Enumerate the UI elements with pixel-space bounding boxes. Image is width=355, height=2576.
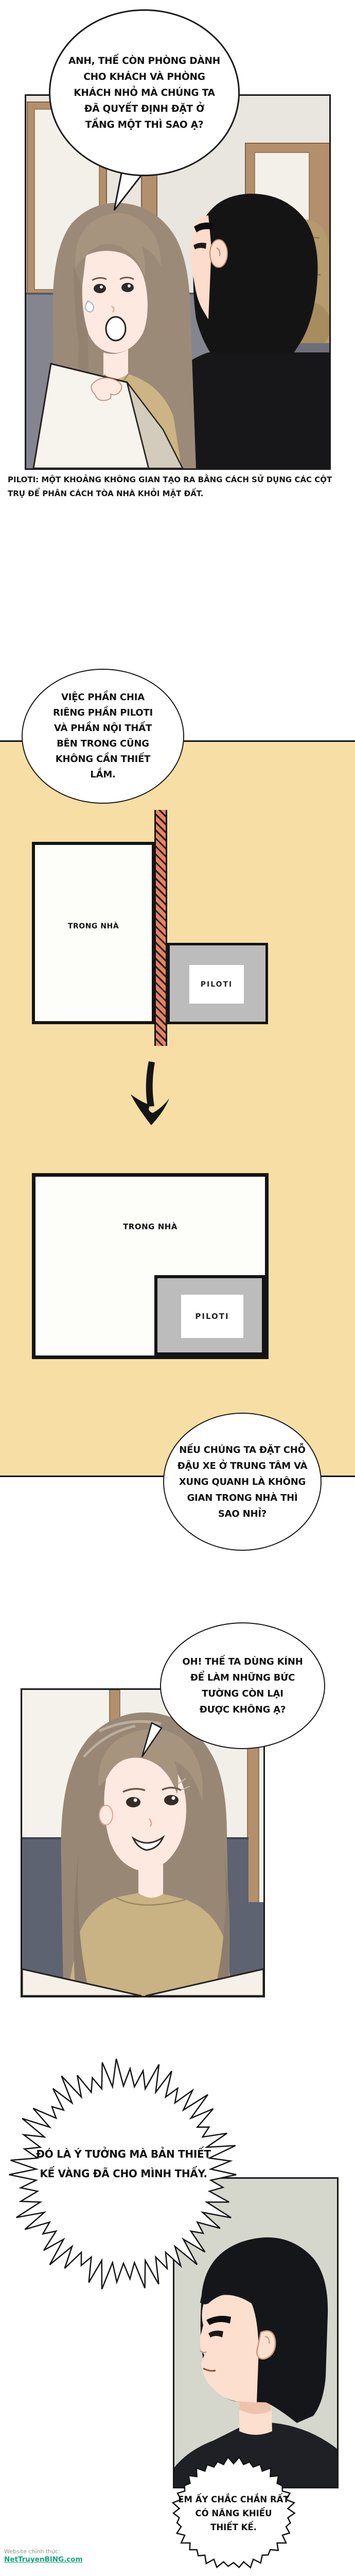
bubble-line: ĐƯỢC KHÔNG Ạ? — [200, 1702, 286, 1718]
caption-line: TRỤ ĐỂ PHÂN CÁCH TÒA NHÀ KHỎI MẶT ĐẤT. — [8, 487, 350, 501]
bubble-line: ĐÓ LÀ Ý TƯỞNG MÀ BẢN THIẾT — [25, 2144, 222, 2164]
bubble-line: THIẾT KẾ. — [177, 2520, 290, 2534]
bubble-line: GIAN TRONG NHÀ THÌ — [187, 1490, 297, 1506]
floorplan-before-room: TRONG NHÀ — [32, 842, 155, 1024]
down-arrow-icon — [122, 1059, 171, 1127]
bubble-line: KHÁCH NHỎ MÀ CHÚNG TA — [74, 85, 215, 101]
bubble-line: OH! THẾ TA DÙNG KÍNH — [182, 1654, 303, 1670]
bubble-line: KẾ VÀNG ĐÃ CHO MÌNH THẤY. — [25, 2164, 222, 2183]
piloti-definition-caption: PILOTI: MỘT KHOẢNG KHÔNG GIAN TẠO RA BẰN… — [8, 473, 350, 501]
piloti-label-box: PILOTI — [189, 965, 244, 1004]
speech-bubble-4: OH! THẾ TA DÙNG KÍNH ĐỂ LÀM NHỮNG BỨC TƯ… — [160, 1622, 325, 1749]
watermark: Website chính thức: NetTruyenBING.com — [4, 2548, 83, 2564]
speech-bubble-3: NẾU CHÚNG TA ĐẶT CHỖ ĐẬU XE Ở TRUNG TÂM … — [163, 1413, 322, 1551]
bubble-line: TẦNG MỘT THÌ SAO Ạ? — [85, 117, 204, 133]
room-label: TRONG NHÀ — [35, 1222, 265, 1231]
room-label: TRONG NHÀ — [35, 922, 152, 930]
piloti-label-box: PILOTI — [181, 1295, 243, 1338]
caption-line: PILOTI: MỘT KHOẢNG KHÔNG GIAN TẠO RA BẰN… — [8, 473, 350, 487]
bubble-line: LẮM. — [90, 767, 115, 783]
burst-bubble-text: ĐÓ LÀ Ý TƯỞNG MÀ BẢN THIẾT KẾ VÀNG ĐÃ CH… — [25, 2144, 222, 2183]
bubble-line: ANH, THẾ CÒN PHÒNG DÀNH — [68, 53, 220, 69]
piloti-label: PILOTI — [195, 1312, 229, 1321]
bubble-line: VÀ PHẦN NỘI THẤT — [54, 721, 152, 736]
speech-bubble-1: ANH, THẾ CÒN PHÒNG DÀNH CHO KHÁCH VÀ PHÒ… — [49, 9, 240, 176]
watermark-prefix: Website chính thức: — [4, 2548, 83, 2555]
bubble-line: ĐẬU XE Ở TRUNG TÂM VÀ — [177, 1458, 308, 1474]
piloti-label: PILOTI — [201, 980, 233, 989]
bubble4-tail — [135, 1716, 166, 1759]
webtoon-page: ANH, THẾ CÒN PHÒNG DÀNH CHO KHÁCH VÀ PHÒ… — [0, 0, 355, 2576]
bubble-line: ĐÃ QUYẾT ĐỊNH ĐẶT Ở — [84, 101, 204, 117]
bubble-line: ĐỂ LÀM NHỮNG BỨC — [190, 1670, 295, 1686]
bubble-line: BÊN TRONG CŨNG — [57, 736, 149, 752]
bubble-line: XUNG QUANH LÀ KHÔNG — [179, 1474, 306, 1490]
bubble-line: KHÔNG CẦN THIẾT — [56, 752, 151, 767]
bubble-line: CHO KHÁCH VÀ PHÒNG — [83, 69, 205, 85]
bubble-line: NẾU CHÚNG TA ĐẶT CHỖ — [179, 1442, 305, 1458]
bubble-line: RIÊNG PHẦN PILOTI — [53, 705, 153, 721]
bubble-line: SAO NHỈ? — [218, 1506, 267, 1522]
hatched-wall-strip — [154, 810, 167, 1046]
watermark-site-link[interactable]: NetTruyenBING.com — [4, 2555, 83, 2564]
bubble-line: CÓ NĂNG KHIẾU — [177, 2506, 290, 2520]
bubble-line: TƯỜNG CÒN LẠI — [202, 1686, 283, 1702]
speech-bubble-2: VIỆC PHẦN CHIA RIÊNG PHẦN PILOTI VÀ PHẦN… — [22, 669, 184, 804]
bubble-line: VIỆC PHẦN CHIA — [61, 690, 145, 705]
bubble5-text: EM ẤY CHẮC CHẮN RẤT CÓ NĂNG KHIẾU THIẾT … — [177, 2493, 290, 2534]
bubble-line: EM ẤY CHẮC CHẮN RẤT — [177, 2493, 290, 2506]
